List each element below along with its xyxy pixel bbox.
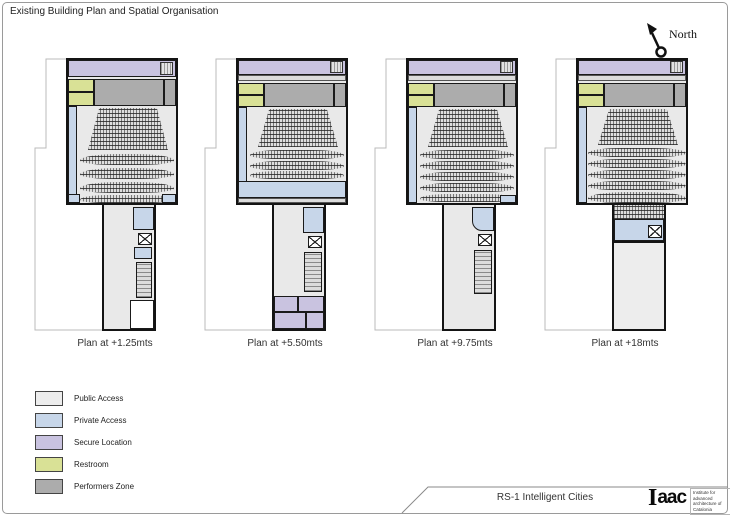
- stairs: [136, 262, 152, 298]
- legend-swatch-private: [35, 413, 63, 428]
- elevator: [648, 225, 662, 238]
- floor-plan-1: Plan at +1.25mts: [30, 56, 200, 351]
- seating-row: [588, 192, 686, 203]
- seating-row: [80, 154, 174, 165]
- performers-stage: [434, 83, 504, 107]
- seating-fan: [258, 109, 338, 147]
- seating-row: [80, 182, 174, 193]
- performers-stage: [604, 83, 674, 107]
- iaac-logo: Iaac Institute for advanced architecture…: [648, 488, 730, 515]
- seating-row: [420, 172, 514, 181]
- seating-row: [250, 171, 344, 179]
- stage-walkway: [408, 75, 516, 81]
- plan-caption: Plan at +1.25mts: [30, 338, 200, 349]
- legend-swatch-performers: [35, 479, 63, 494]
- legend-item-secure: Secure Location: [35, 434, 134, 450]
- vestibule-right: [162, 194, 176, 203]
- plan-caption: Plan at +9.75mts: [370, 338, 540, 349]
- stairs: [474, 250, 492, 294]
- side-corridor: [68, 106, 77, 203]
- restroom-b: [578, 95, 604, 107]
- restroom-a: [578, 83, 604, 95]
- north-label: North: [669, 27, 697, 42]
- private-gallery: [238, 181, 346, 198]
- secure-room: [306, 312, 324, 329]
- stair-box: [330, 61, 343, 73]
- restroom-a: [68, 79, 94, 92]
- legend-item-performers: Performers Zone: [35, 478, 134, 494]
- legend-swatch-restroom: [35, 457, 63, 472]
- seating-row: [588, 148, 686, 157]
- open-hall: [614, 241, 664, 329]
- restroom-a: [238, 83, 264, 95]
- vestibule-left: [68, 194, 80, 203]
- stairs: [304, 252, 322, 292]
- legend-label: Performers Zone: [74, 482, 134, 491]
- seating-row: [420, 150, 514, 159]
- service-room: [130, 300, 154, 329]
- private-room: [133, 207, 154, 230]
- page-title: Existing Building Plan and Spatial Organ…: [10, 6, 218, 17]
- private-room: [303, 207, 324, 233]
- legend-swatch-secure: [35, 435, 63, 450]
- elevator: [138, 233, 152, 245]
- iaac-logo-text: I: [648, 488, 657, 508]
- stair-box: [160, 62, 173, 75]
- iaac-logo-text-rest: aac: [657, 488, 686, 507]
- legend-label: Public Access: [74, 394, 123, 403]
- legend-item-public: Public Access: [35, 390, 134, 406]
- plan-caption: Plan at +18mts: [540, 338, 710, 349]
- vestibule-right: [500, 195, 516, 203]
- north-indicator: North: [645, 20, 715, 60]
- side-corridor: [408, 107, 417, 203]
- secure-room: [274, 296, 298, 312]
- private-room: [134, 247, 152, 259]
- seating-balcony: [614, 205, 664, 219]
- seating-fan: [428, 109, 508, 147]
- seating-fan: [598, 109, 678, 145]
- secure-room: [274, 312, 306, 329]
- secure-room: [298, 296, 324, 312]
- legend-swatch-public: [35, 391, 63, 406]
- iaac-logo-caption: Institute for advanced architecture of C…: [690, 488, 730, 515]
- floor-plan-4: Plan at +18mts: [540, 56, 710, 351]
- seating-row: [420, 183, 514, 192]
- stage-walkway: [238, 75, 346, 81]
- restroom-a: [408, 83, 434, 95]
- seating-row: [80, 168, 174, 179]
- legend-label: Private Access: [74, 416, 126, 425]
- stage-walkway: [578, 75, 686, 81]
- restroom-b: [68, 92, 94, 106]
- performers-room: [674, 83, 686, 107]
- legend-item-private: Private Access: [35, 412, 134, 428]
- elevator: [478, 234, 492, 246]
- seating-row: [250, 161, 344, 170]
- seating-fan: [88, 108, 168, 150]
- legend-item-restroom: Restroom: [35, 456, 134, 472]
- seating-row: [588, 181, 686, 190]
- seating-row: [588, 170, 686, 179]
- floor-plan-2: Plan at +5.50mts: [200, 56, 370, 351]
- seating-row: [80, 195, 174, 203]
- floor-plan-3: Plan at +9.75mts: [370, 56, 540, 351]
- side-corridor: [578, 107, 587, 203]
- stair-box: [500, 61, 513, 73]
- project-title: RS-1 Intelligent Cities: [440, 492, 650, 503]
- private-room: [472, 207, 494, 231]
- restroom-b: [408, 95, 434, 107]
- legend-label: Secure Location: [74, 438, 132, 447]
- stair-box: [670, 61, 683, 73]
- performers-room: [334, 83, 346, 107]
- elevator: [308, 236, 322, 248]
- seating-row: [250, 150, 344, 159]
- seating-row: [588, 159, 686, 168]
- seating-row: [420, 161, 514, 170]
- legend: Public Access Private Access Secure Loca…: [35, 390, 134, 500]
- performers-stage: [94, 79, 164, 106]
- legend-label: Restroom: [74, 460, 109, 469]
- restroom-b: [238, 95, 264, 107]
- performers-room: [164, 79, 176, 106]
- performers-stage: [264, 83, 334, 107]
- performers-room: [504, 83, 516, 107]
- plan-caption: Plan at +5.50mts: [200, 338, 370, 349]
